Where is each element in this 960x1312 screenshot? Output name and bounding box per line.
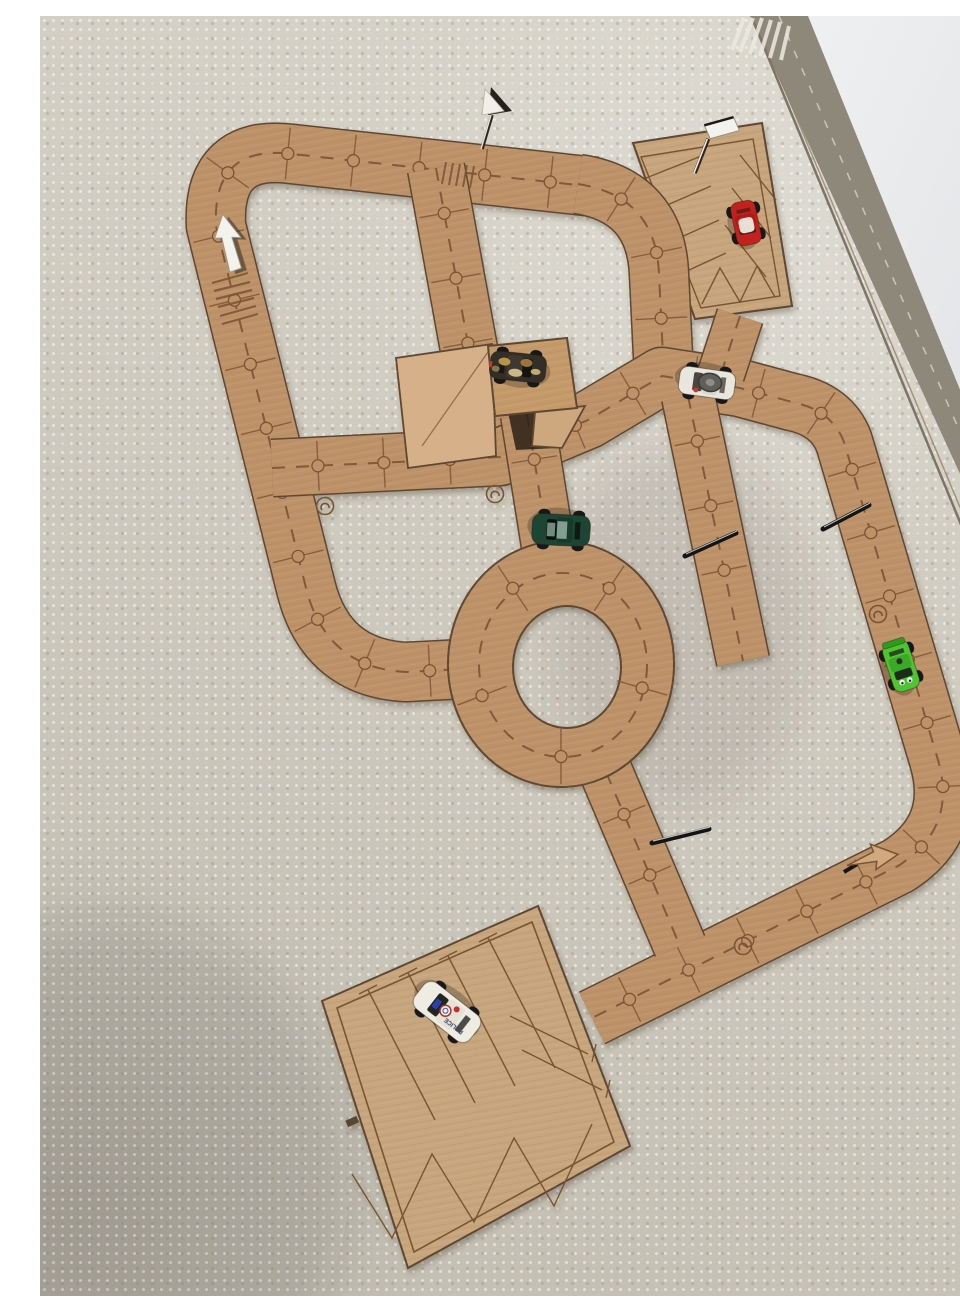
board-slot	[345, 1116, 359, 1127]
road-top-right-curve	[578, 177, 687, 376]
parking-lot-bottom-grain	[322, 906, 630, 1268]
road-parking-link	[721, 316, 740, 374]
scene-canvas: POLICE	[40, 16, 960, 1296]
triangle-sign-standing	[481, 87, 512, 149]
photo-toy-wooden-road-track: POLICE	[40, 16, 960, 1296]
